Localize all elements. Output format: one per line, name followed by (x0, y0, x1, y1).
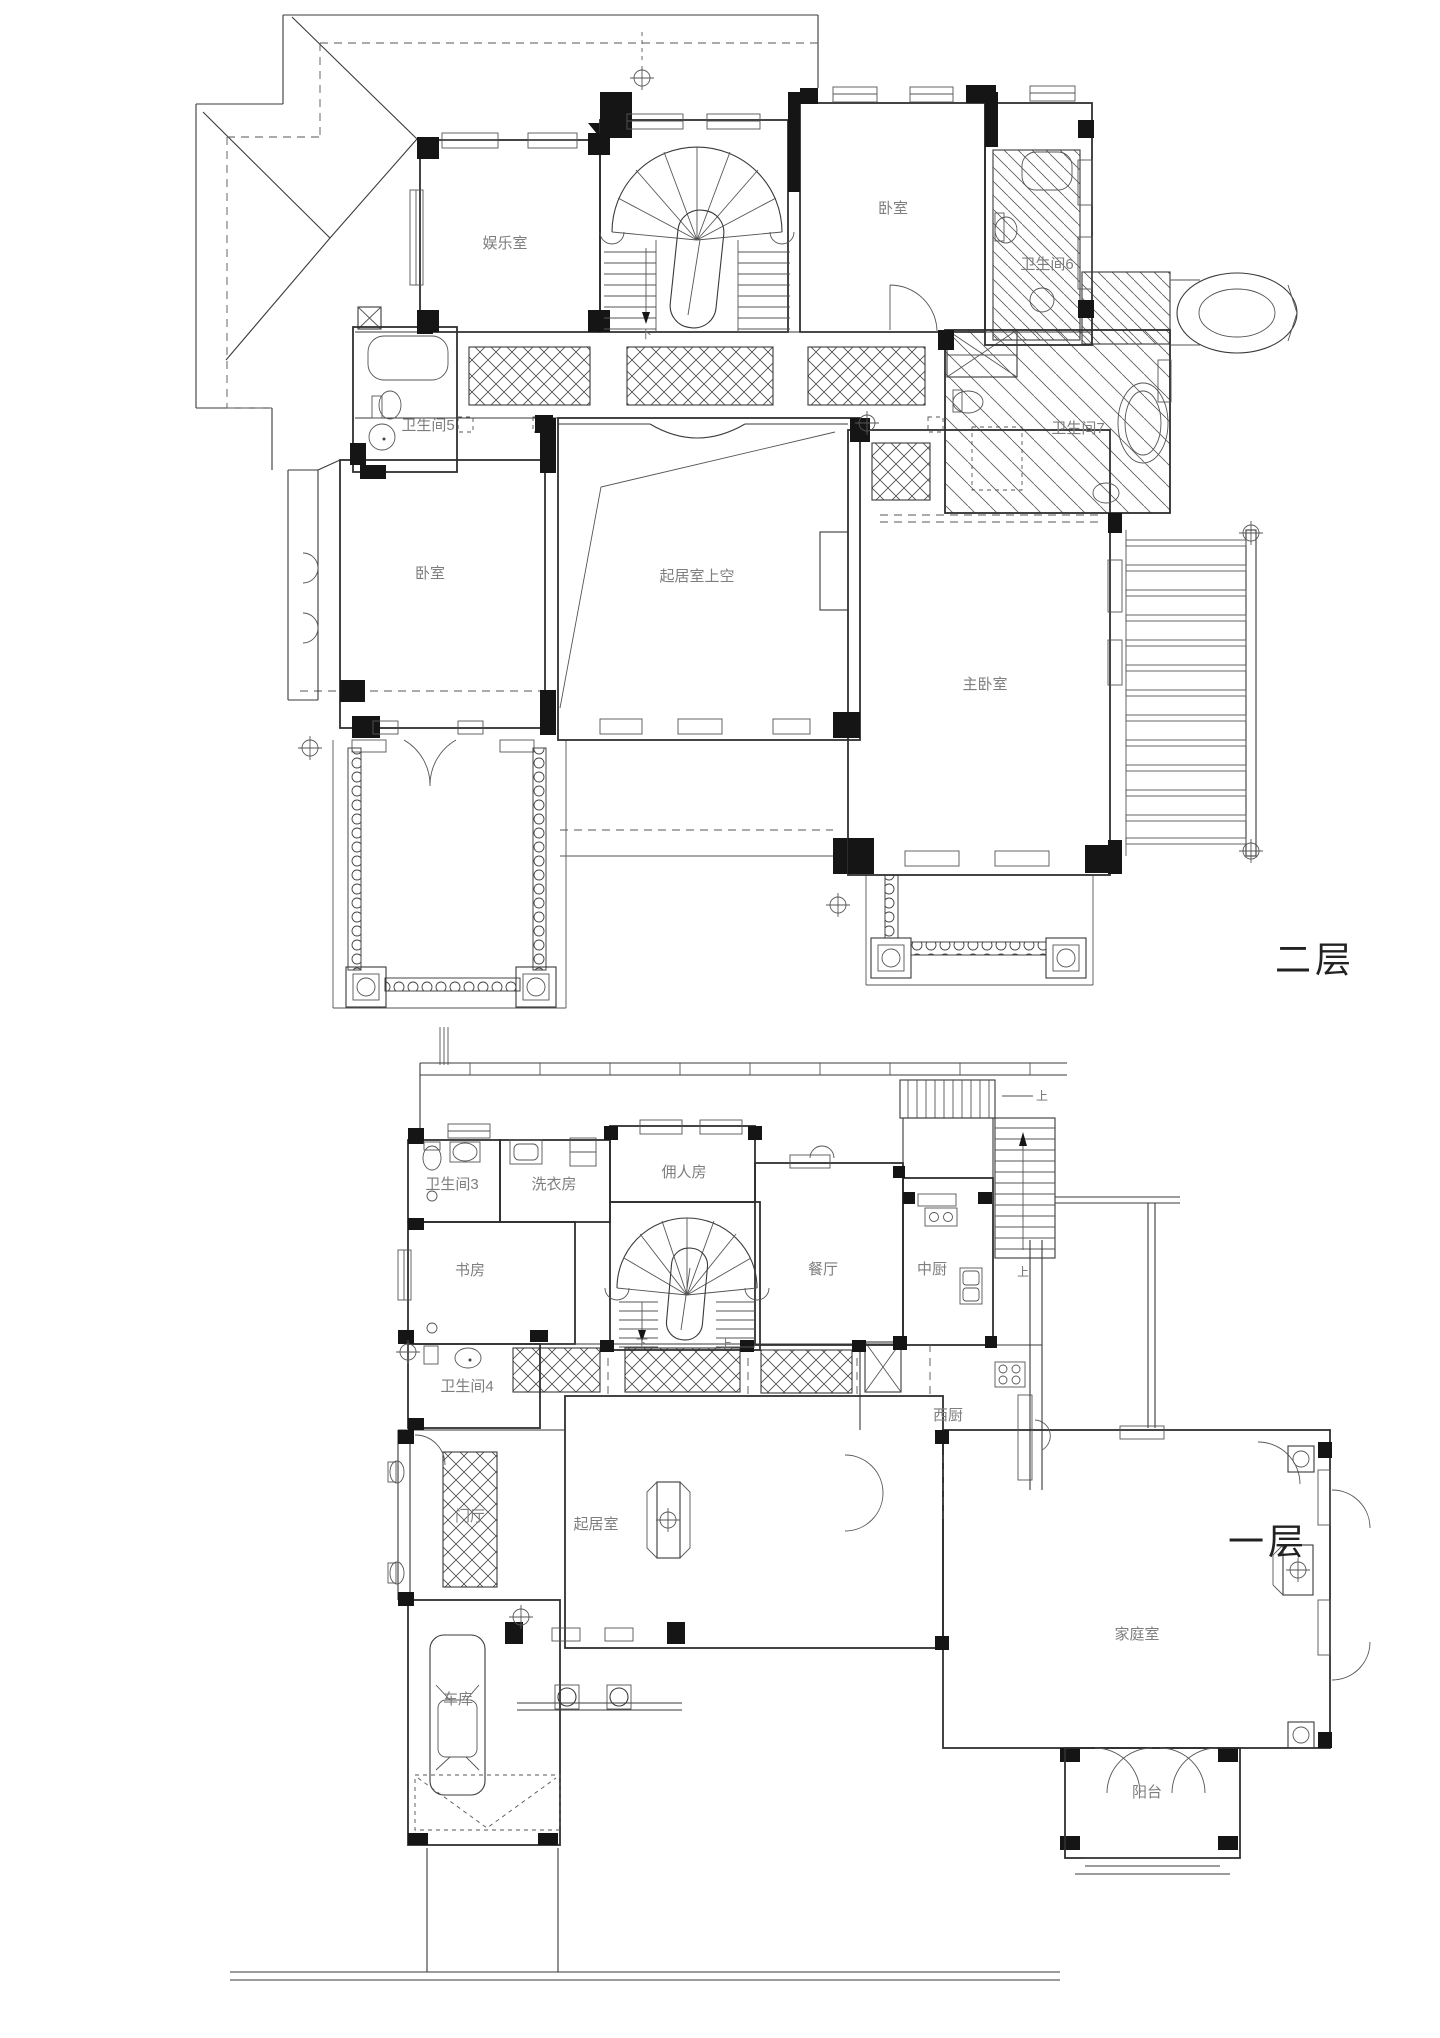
bath3-fixtures (423, 1142, 480, 1170)
pergola-louvers (1126, 521, 1263, 863)
floorplan-document: 娱乐室 卧室 卫生间6 卫生间5 卫生间7 卧室 起居室上空 主卧室 下 二层 (0, 0, 1440, 2038)
family-room-features (1273, 1446, 1314, 1748)
balcony-porch (1065, 1748, 1240, 1874)
room-label-kitchen-w: 西厨 (933, 1407, 963, 1424)
curved-stair-icon-1f (605, 1218, 769, 1347)
room-label-bedroom-west: 卧室 (415, 565, 445, 582)
floor-finishes-1f (443, 1342, 901, 1587)
room-label-living-void: 起居室上空 (659, 568, 734, 585)
room-label-bath5: 卫生间5 (401, 417, 454, 434)
outdoor-stair-up-label-top: 上 (1036, 1089, 1048, 1103)
outdoor-stair (900, 1080, 1055, 1258)
floor-title-first: 一层 (1228, 1521, 1308, 1562)
right-terrace (560, 830, 1093, 985)
room-label-dining: 餐厅 (808, 1261, 838, 1278)
floorplan-canvas: 娱乐室 卧室 卫生间6 卫生间5 卫生间7 卧室 起居室上空 主卧室 下 二层 (0, 0, 1440, 2038)
room-label-kitchen-cn: 中厨 (917, 1261, 947, 1278)
first-floor-plan: 卫生间3 洗衣房 佣人房 书房 餐厅 中厨 卫生间4 西厨 起居室 门厅 家庭室… (230, 1063, 1370, 1980)
walls-first-floor (398, 1118, 1330, 1845)
room-label-garage: 车库 (443, 1691, 473, 1708)
bay-window (1170, 273, 1297, 353)
room-label-living: 起居室 (573, 1516, 618, 1533)
room-label-laundry: 洗衣房 (531, 1176, 576, 1193)
stair-down-label-2f: 下 (640, 327, 652, 341)
room-label-bath4: 卫生间4 (440, 1378, 493, 1395)
room-label-bath3: 卫生间3 (425, 1176, 478, 1193)
entry-fixtures (388, 1461, 404, 1584)
stair-up-label-1f: 上 (720, 1337, 732, 1351)
columns-first-floor (398, 1126, 1332, 1850)
stair-down-label-1f: 下 (636, 1337, 648, 1351)
room-label-maid: 佣人房 (661, 1164, 706, 1181)
room-label-study: 书房 (455, 1262, 485, 1279)
laundry-fixtures (510, 1138, 596, 1166)
left-terrace (298, 736, 566, 1065)
room-label-foyer: 门厅 (455, 1508, 485, 1525)
room-label-bath6: 卫生间6 (1020, 256, 1073, 273)
room-label-entertainment: 娱乐室 (482, 235, 527, 252)
curved-stair-icon (600, 147, 794, 332)
garage-car (230, 1635, 1060, 1980)
room-label-family: 家庭室 (1114, 1626, 1159, 1643)
room-label-master: 主卧室 (962, 676, 1007, 693)
floor-title-second: 二层 (1275, 939, 1355, 980)
outdoor-stair-up-label-side: 上 (1017, 1265, 1029, 1279)
windows-first-floor (398, 1120, 1370, 1680)
room-label-balcony: 阳台 (1132, 1784, 1162, 1801)
room-label-bath7: 卫生间7 (1051, 420, 1104, 437)
second-floor-plan: 娱乐室 卧室 卫生间6 卫生间5 卫生间7 卧室 起居室上空 主卧室 下 二层 (196, 15, 1355, 1065)
room-label-bedroom-north: 卧室 (878, 200, 908, 217)
